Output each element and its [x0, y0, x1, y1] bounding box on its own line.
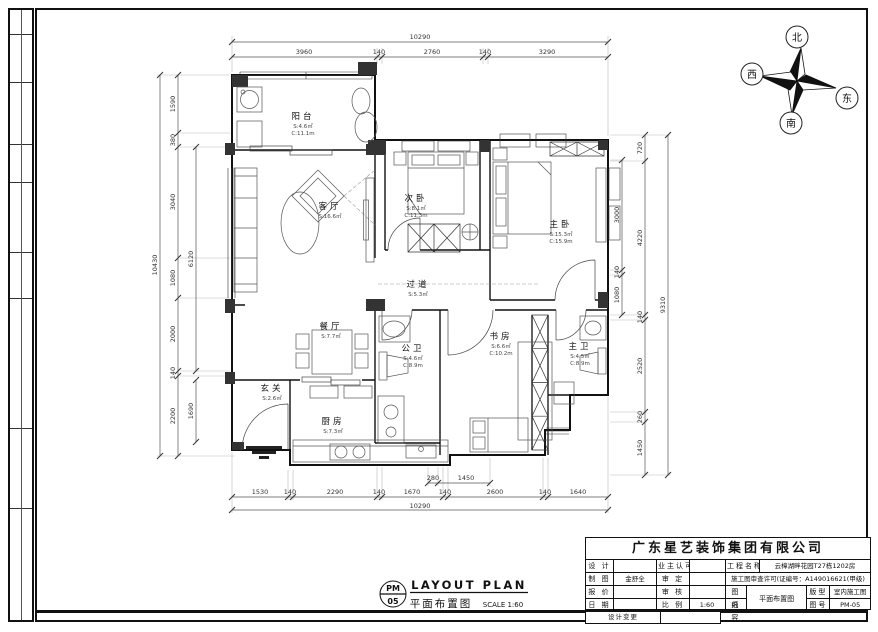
- kitchen-cabinet: [310, 386, 338, 398]
- svg-text:140: 140: [636, 311, 644, 323]
- sofa: [234, 168, 257, 292]
- tb-version-value: 室内施工图: [830, 586, 870, 598]
- room-label-living: 客厅S:16.6㎡: [318, 201, 342, 220]
- svg-text:3040: 3040: [169, 194, 177, 211]
- svg-text:140: 140: [613, 266, 621, 278]
- svg-text:1640: 1640: [570, 488, 587, 496]
- svg-text:S:4.6㎡: S:4.6㎡: [403, 354, 423, 362]
- svg-text:1530: 1530: [252, 488, 269, 496]
- svg-text:2520: 2520: [636, 358, 644, 375]
- svg-text:380: 380: [169, 134, 177, 146]
- svg-text:C:15.9m: C:15.9m: [549, 239, 572, 245]
- svg-text:C:11.1m: C:11.1m: [291, 131, 314, 137]
- svg-text:S:15.3㎡: S:15.3㎡: [549, 230, 573, 238]
- tb-quote-value: [614, 586, 657, 598]
- svg-text:6120: 6120: [187, 251, 195, 268]
- svg-text:140: 140: [169, 367, 177, 379]
- svg-text:主卫: 主卫: [568, 341, 591, 352]
- svg-text:S:16.6㎡: S:16.6㎡: [318, 212, 342, 220]
- tb-owner-approve-value: [690, 560, 726, 572]
- compass-south: 南: [786, 117, 796, 130]
- tb-design-value: [614, 560, 657, 572]
- svg-text:2760: 2760: [424, 48, 441, 56]
- bed-second: [408, 152, 464, 214]
- svg-text:阳台: 阳台: [291, 111, 314, 122]
- drawing-title-en: LAYOUT PLAN: [411, 578, 527, 592]
- balcony-cabinet: [237, 121, 262, 147]
- svg-text:主卧: 主卧: [549, 219, 572, 230]
- room-label-bath-public: 公卫S:4.6㎡C:8.9m: [401, 344, 424, 369]
- drawing-code-top: PM: [386, 584, 400, 593]
- svg-text:140: 140: [479, 48, 491, 56]
- tb-sheet-title: 平面布置图: [746, 586, 808, 612]
- nightstand: [493, 148, 507, 160]
- nightstand: [493, 236, 507, 248]
- tv-unit: [364, 178, 375, 262]
- svg-text:S:5.3㎡: S:5.3㎡: [408, 290, 428, 298]
- svg-text:餐厅: 餐厅: [319, 322, 342, 332]
- svg-text:过道: 过道: [406, 279, 429, 290]
- tb-number-value: PM-05: [830, 599, 870, 612]
- tb-sheet-label: 图 纸: [726, 586, 746, 598]
- dashed-guides: [344, 170, 540, 284]
- public-bath-fixtures: [378, 316, 410, 443]
- dim-bottom-total: 10290: [410, 502, 431, 510]
- compass-east: 东: [842, 92, 852, 105]
- tb-draft-value: 金舒全: [614, 573, 657, 585]
- title-block: 广东星艺装饰集团有限公司 设 计 业主认可 工程名称 云樟湖畔花园T27栋120…: [585, 537, 871, 610]
- tb-owner-approve-label: 业主认可: [657, 560, 690, 572]
- drawing-scale: SCALE 1:60: [483, 601, 523, 609]
- master-bench: [596, 168, 606, 242]
- tb-quote-label: 报 价: [586, 586, 614, 598]
- svg-text:S:4.5㎡: S:4.5㎡: [570, 352, 590, 360]
- svg-text:280: 280: [427, 474, 439, 482]
- tb-date-label: 日 期: [586, 599, 614, 612]
- room-label-bedroom2: 次卧S:8.1㎡C:11.3m: [404, 193, 427, 219]
- tb-verify-value: [690, 573, 726, 585]
- study-desk: [518, 342, 574, 440]
- room-label-study: 书房S:6.6㎡C:10.2m: [489, 331, 512, 357]
- svg-text:140: 140: [284, 488, 296, 496]
- room-label-bath-master: 主卫S:4.5㎡C:8.9m: [568, 341, 591, 367]
- tb-draft-label: 制 图: [586, 573, 614, 585]
- svg-text:客厅: 客厅: [318, 201, 341, 212]
- svg-text:140: 140: [539, 488, 551, 496]
- svg-text:1080: 1080: [169, 270, 177, 287]
- floorplan-sheet: { "colors": {"wall_line": "#111111", "wa…: [0, 0, 878, 632]
- room-label-hallway: 过道S:5.3㎡: [406, 279, 429, 298]
- tb-content-label: 内 容: [726, 599, 746, 612]
- svg-text:次卧: 次卧: [404, 193, 427, 204]
- nightstand: [466, 152, 478, 165]
- ceiling-fan-icon: [462, 224, 478, 240]
- svg-text:1690: 1690: [187, 403, 195, 420]
- tb-version-label: 版型: [807, 586, 829, 598]
- room-label-kitchen: 厨房S:7.3㎡: [321, 416, 344, 435]
- svg-text:140: 140: [373, 48, 385, 56]
- compass-north: 北: [792, 32, 802, 44]
- plants: [352, 88, 377, 142]
- svg-text:S:7.3㎡: S:7.3㎡: [323, 427, 343, 435]
- svg-text:1670: 1670: [404, 488, 421, 496]
- svg-text:2200: 2200: [169, 408, 177, 425]
- svg-text:厨房: 厨房: [321, 416, 344, 427]
- svg-text:2000: 2000: [169, 326, 177, 343]
- svg-text:3290: 3290: [539, 48, 556, 56]
- tb-revision-value: [661, 612, 721, 624]
- svg-text:S:6.6㎡: S:6.6㎡: [491, 342, 511, 350]
- kitchen-cabinet: [344, 386, 372, 398]
- svg-text:S:8.1㎡: S:8.1㎡: [406, 204, 426, 212]
- tb-review-value: [690, 586, 724, 598]
- svg-text:260: 260: [636, 411, 644, 423]
- washing-machine: [237, 87, 262, 112]
- tb-date-value: [614, 599, 657, 612]
- tb-scale-value: 1:60: [690, 599, 724, 612]
- study-daybed: [470, 418, 528, 452]
- dim-top-total: 10290: [410, 33, 431, 41]
- tb-verify-label: 审 定: [657, 573, 690, 585]
- company-name: 广东星艺装饰集团有限公司: [586, 538, 870, 560]
- svg-text:C:11.3m: C:11.3m: [404, 213, 427, 219]
- bed-master: [493, 162, 551, 234]
- tb-number-label: 图号: [807, 599, 829, 612]
- tb-scale-label: 比 例: [657, 599, 690, 612]
- room-label-dining: 餐厅S:7.7㎡: [319, 322, 342, 340]
- dim-left-total: 10430: [151, 255, 159, 276]
- svg-text:书房: 书房: [489, 331, 512, 342]
- svg-text:4220: 4220: [636, 230, 644, 247]
- svg-text:1080: 1080: [613, 287, 621, 304]
- drawing-title-cn: 平面布置图: [410, 598, 473, 610]
- room-label-balcony: 阳台S:4.6㎡C:11.1m: [291, 111, 314, 137]
- svg-text:1450: 1450: [458, 474, 475, 482]
- room-label-master: 主卧S:15.3㎡C:15.9m: [549, 219, 573, 245]
- tb-design-label: 设 计: [586, 560, 614, 572]
- svg-text:C:10.2m: C:10.2m: [489, 351, 512, 357]
- svg-text:玄关: 玄关: [260, 383, 283, 394]
- entry-step-icon: [246, 446, 282, 459]
- tb-license: 施工图审查许可(证编号：A149016621(甲级): [726, 573, 870, 585]
- svg-text:140: 140: [439, 488, 451, 496]
- nightstand: [394, 152, 406, 165]
- tb-project-label: 工程名称: [726, 560, 760, 572]
- tb-project-value: 云樟湖畔花园T27栋1202房: [760, 560, 870, 572]
- dimension-labels: 10290 3960 140 2760 140 3290 280 1450 15…: [151, 33, 667, 510]
- svg-text:1590: 1590: [169, 96, 177, 113]
- svg-text:S:7.7㎡: S:7.7㎡: [321, 332, 341, 340]
- tb-review-label: 审 核: [657, 586, 690, 598]
- walls: [232, 75, 608, 465]
- dim-right-total: 9310: [659, 297, 667, 314]
- svg-text:1450: 1450: [636, 440, 644, 457]
- svg-text:2290: 2290: [327, 488, 344, 496]
- svg-text:C:8.9m: C:8.9m: [570, 361, 590, 367]
- compass-west: 西: [747, 70, 757, 81]
- rug-oval: [281, 192, 319, 254]
- svg-text:S:2.6㎡: S:2.6㎡: [262, 394, 282, 402]
- drawing-code-bottom: 05: [387, 597, 399, 606]
- svg-text:140: 140: [373, 488, 385, 496]
- svg-text:公卫: 公卫: [401, 344, 424, 354]
- drawing-title: PM 05 LAYOUT PLAN 平面布置图 SCALE 1:60: [380, 578, 528, 610]
- room-label-foyer: 玄关S:2.6㎡: [260, 383, 283, 402]
- svg-text:3960: 3960: [296, 48, 313, 56]
- tb-revision-label: 设计变更: [585, 612, 661, 624]
- svg-text:C:8.9m: C:8.9m: [403, 363, 423, 369]
- svg-text:720: 720: [636, 142, 644, 154]
- svg-text:S:4.6㎡: S:4.6㎡: [293, 122, 313, 130]
- compass-rose: 北 西 东 南: [741, 26, 858, 134]
- svg-text:2600: 2600: [487, 488, 504, 496]
